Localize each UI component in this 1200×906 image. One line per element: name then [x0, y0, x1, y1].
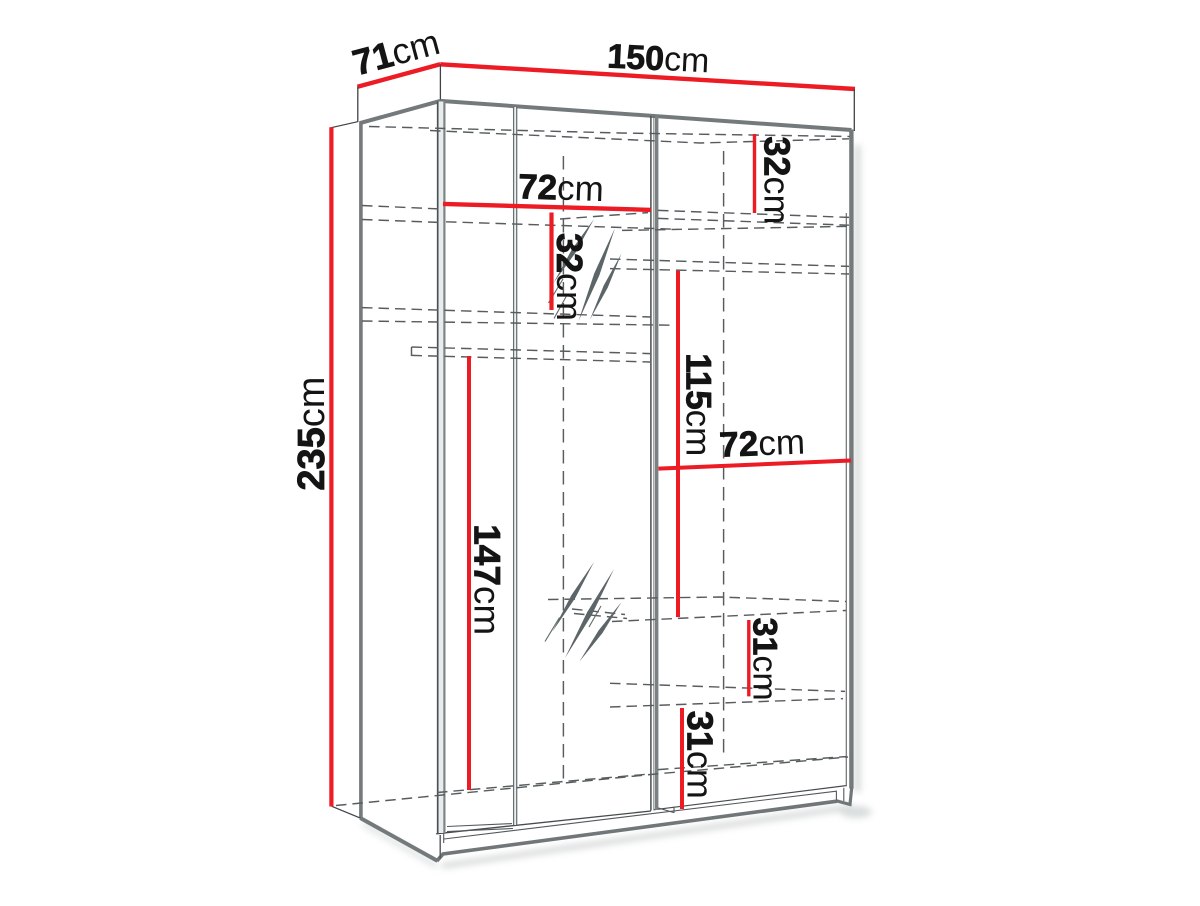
svg-text:235cm: 235cm [291, 377, 333, 491]
svg-text:115cm: 115cm [678, 353, 717, 456]
svg-text:72cm: 72cm [719, 423, 806, 465]
svg-text:32cm: 32cm [757, 136, 798, 224]
svg-text:150cm: 150cm [607, 37, 711, 80]
svg-text:72cm: 72cm [518, 167, 605, 209]
svg-text:147cm: 147cm [467, 524, 508, 635]
svg-text:31cm: 31cm [746, 618, 784, 701]
svg-text:32cm: 32cm [549, 233, 590, 321]
svg-text:31cm: 31cm [680, 711, 721, 799]
